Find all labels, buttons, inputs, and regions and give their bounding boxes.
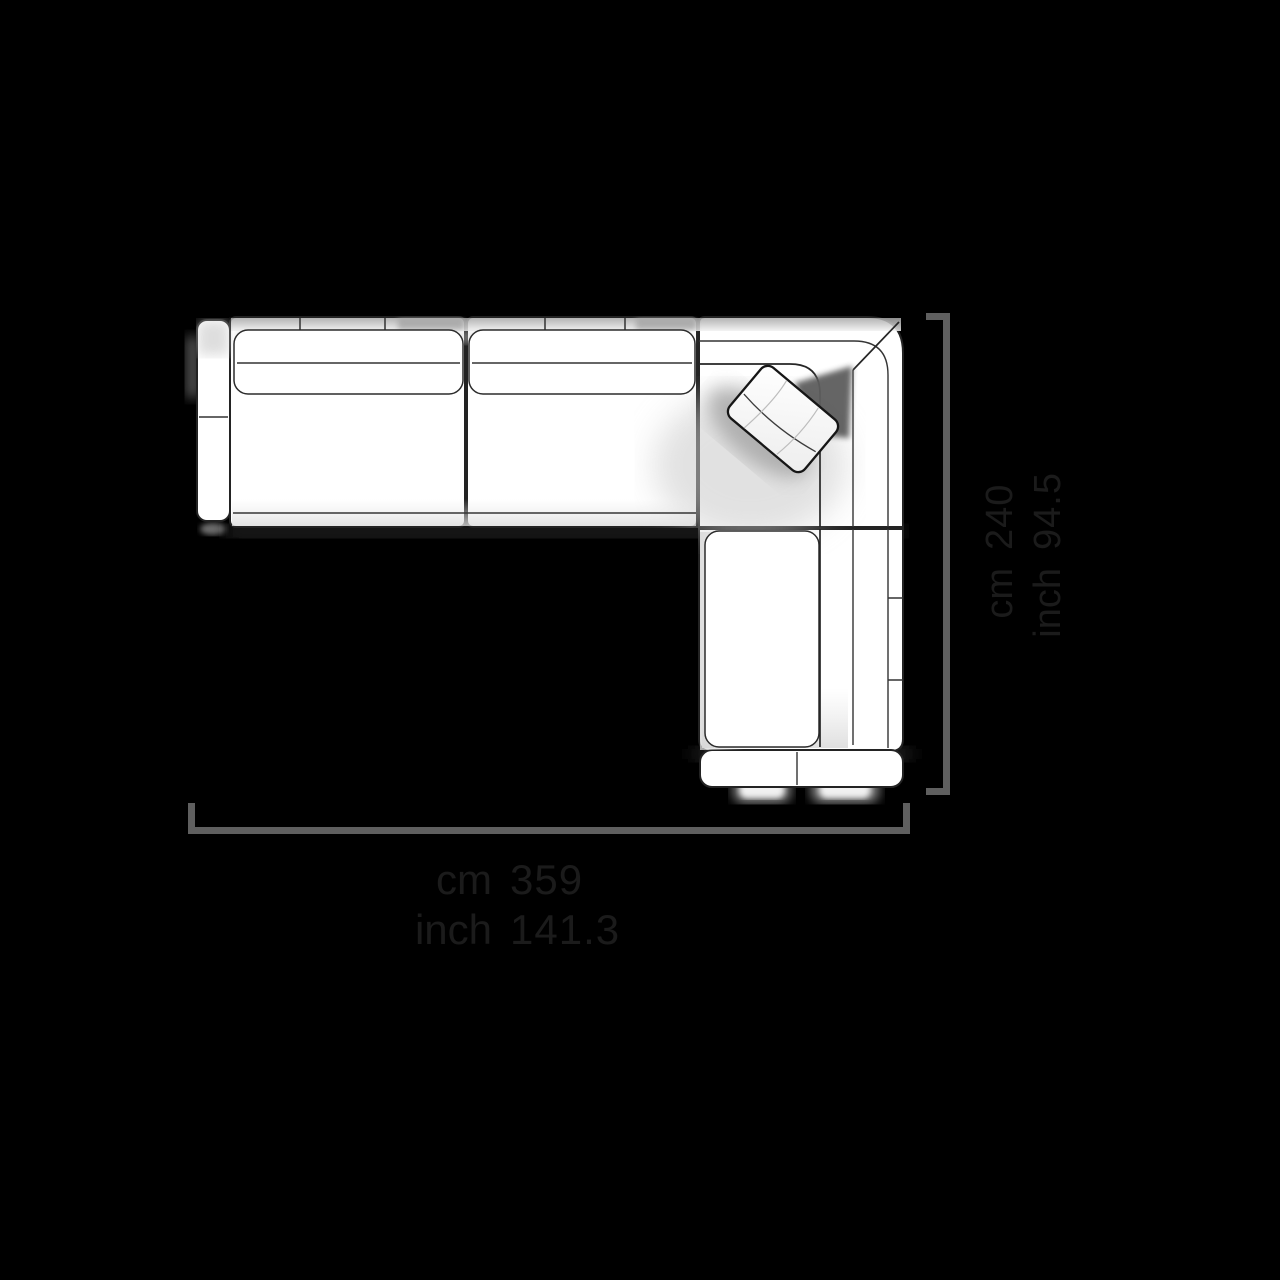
- depth-dimension-line: [926, 313, 950, 795]
- chaise-seat-cushion: [705, 531, 819, 747]
- depth-dimension-label: cm 240 inch 94.5: [978, 470, 1070, 670]
- sofa-plan-drawing: [0, 0, 1280, 1280]
- width-cm-unit: cm: [352, 856, 492, 903]
- back-cushion-1: [234, 330, 463, 394]
- back-cushion-2: [469, 330, 695, 394]
- depth-inch-value: 94.5: [1026, 470, 1071, 550]
- dimension-diagram-canvas: cm 359 inch 141.3 cm 240 inch 94.5: [0, 0, 1280, 1280]
- bottom-armrest: [700, 750, 903, 787]
- width-cm-value: 359: [510, 856, 620, 903]
- depth-inch-unit: inch: [1026, 568, 1071, 670]
- width-dimension-line: [188, 803, 910, 834]
- width-inch-value: 141.3: [510, 906, 620, 953]
- depth-cm-value: 240: [978, 470, 1023, 550]
- width-inch-unit: inch: [352, 906, 492, 953]
- width-dimension-label: cm 359 inch 141.3: [352, 856, 620, 953]
- depth-cm-unit: cm: [978, 568, 1023, 670]
